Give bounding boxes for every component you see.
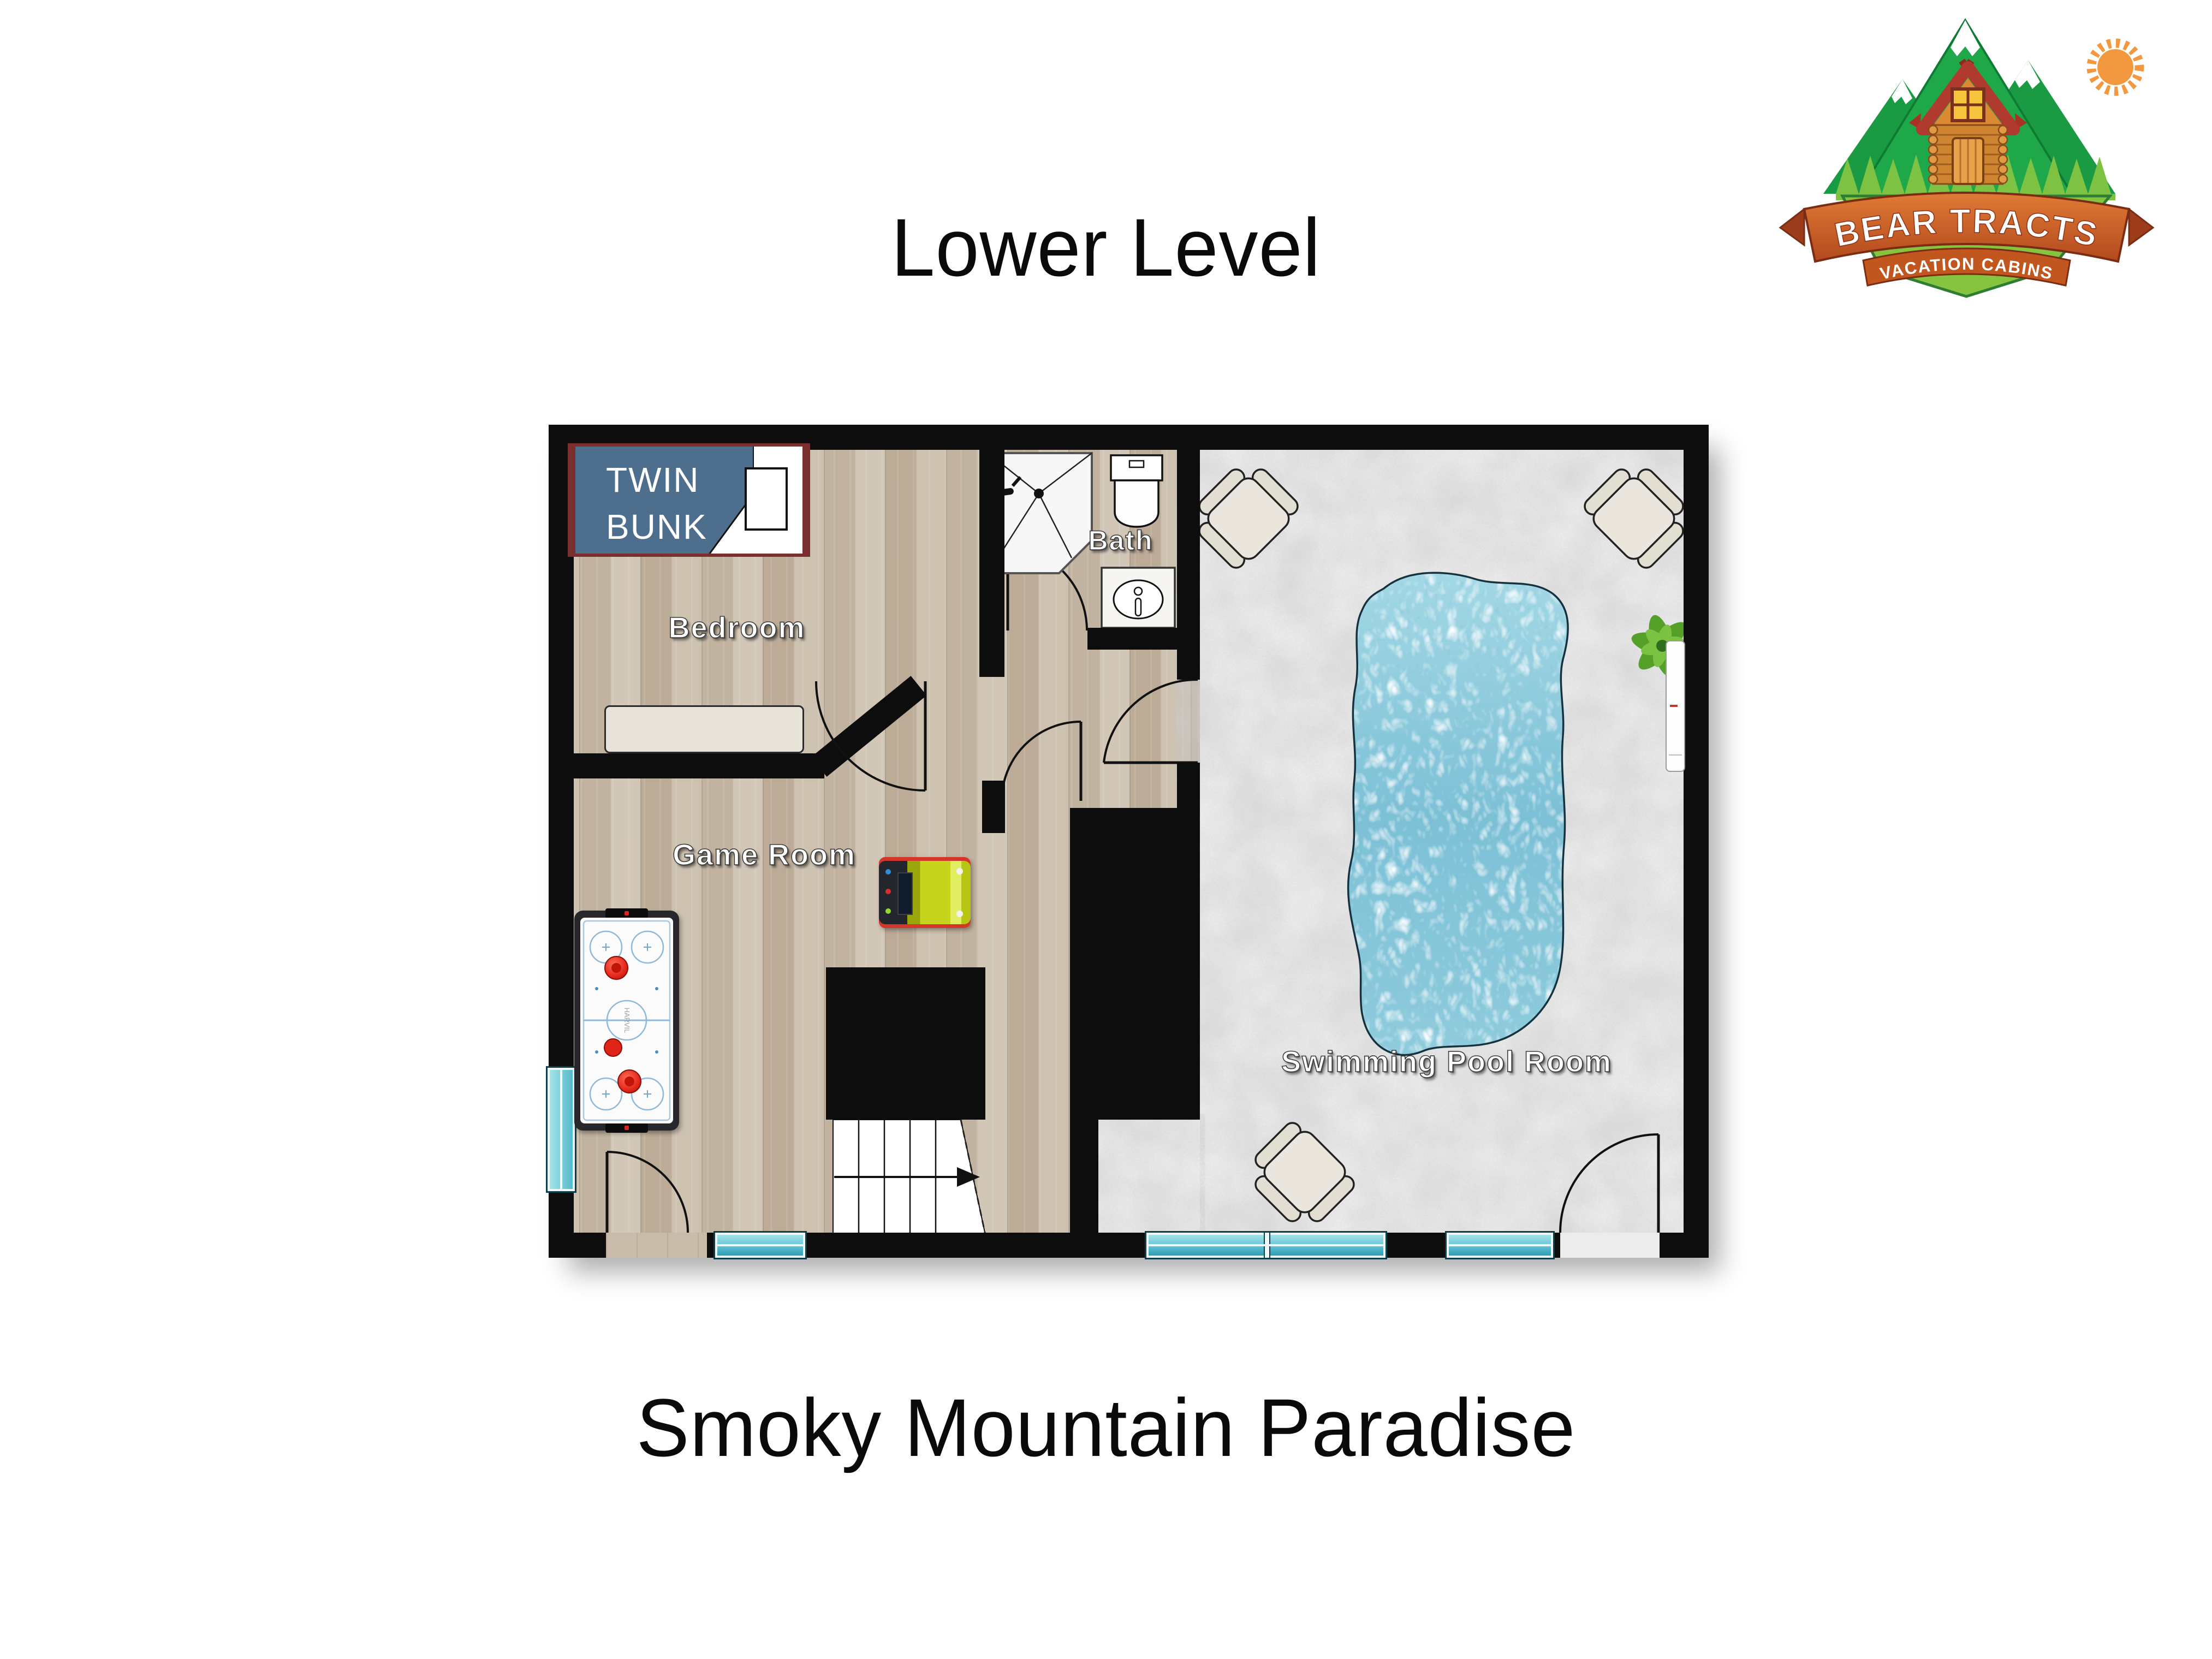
wall-bath-left: [979, 450, 1004, 677]
arcade-cap: [956, 868, 963, 875]
game-room-label: Game Room: [673, 838, 856, 872]
page: { "header": { "title": "Lower Level" }, …: [0, 0, 2212, 1659]
wall-lower-strip: [1070, 1120, 1098, 1233]
wall-heater-icon: [1666, 640, 1685, 772]
window-bottom-pool-double: [1146, 1233, 1386, 1258]
dresser: [604, 705, 804, 753]
floor-plan: TWIN BUNK: [549, 425, 1709, 1258]
wall-pool-mid: [1177, 763, 1200, 811]
bear-tracts-logo: BEAR TRACTS VACATION CABINS: [1766, 8, 2167, 300]
hockey-goal-bottom: [605, 1123, 648, 1133]
swimming-pool: [1340, 564, 1580, 1066]
toilet: [1111, 455, 1162, 527]
game-room-exterior-door: [607, 1152, 688, 1233]
door-gap-game-room: [606, 1233, 707, 1258]
wall-bedroom-bottom: [549, 753, 824, 778]
hall-door: [1002, 722, 1081, 801]
air-hockey-table: HARVIL: [574, 911, 679, 1131]
wall-hall-stub: [982, 781, 1005, 833]
hockey-playfield: HARVIL: [580, 918, 673, 1123]
wall-right: [1684, 425, 1709, 1258]
cabin-name-title: Smoky Mountain Paradise: [33, 1387, 2179, 1468]
bath-label: Bath: [1088, 525, 1153, 556]
twin-bunk-bed: TWIN BUNK: [568, 443, 810, 557]
hockey-pucks: [604, 956, 641, 1093]
door-gap-pool-room: [1560, 1233, 1660, 1258]
svg-text:HARVIL: HARVIL: [623, 1008, 631, 1033]
staircase: [833, 1120, 985, 1235]
diagonal-wall: [819, 686, 919, 767]
wall-bath-bottom: [1087, 628, 1185, 650]
cabin-door-icon: [1953, 138, 1983, 184]
arcade-screen: [897, 872, 913, 915]
window-bottom-pool-single: [1447, 1233, 1553, 1258]
arcade-button: [885, 869, 891, 875]
bathroom-sink: [1102, 568, 1175, 628]
arcade-button: [885, 889, 891, 894]
window-game-room-left: [548, 1068, 575, 1191]
under-stair-void: [826, 967, 985, 1120]
window-bottom-game-room: [715, 1233, 805, 1258]
pool-room-door: [1104, 680, 1198, 763]
bedroom-label: Bedroom: [668, 611, 805, 645]
wall-pool-upper: [1177, 450, 1200, 680]
sun-icon: [2091, 43, 2139, 91]
hockey-goal-top: [605, 908, 648, 918]
closet-void: [1070, 808, 1200, 1120]
pool-room-label: Swimming Pool Room: [1281, 1045, 1612, 1079]
bed-label: TWIN BUNK: [606, 456, 707, 550]
arcade-machine: [879, 857, 971, 928]
pillow: [746, 468, 787, 530]
window-mullion: [1264, 1233, 1270, 1258]
arcade-button: [885, 908, 891, 914]
arcade-cap: [956, 911, 963, 917]
